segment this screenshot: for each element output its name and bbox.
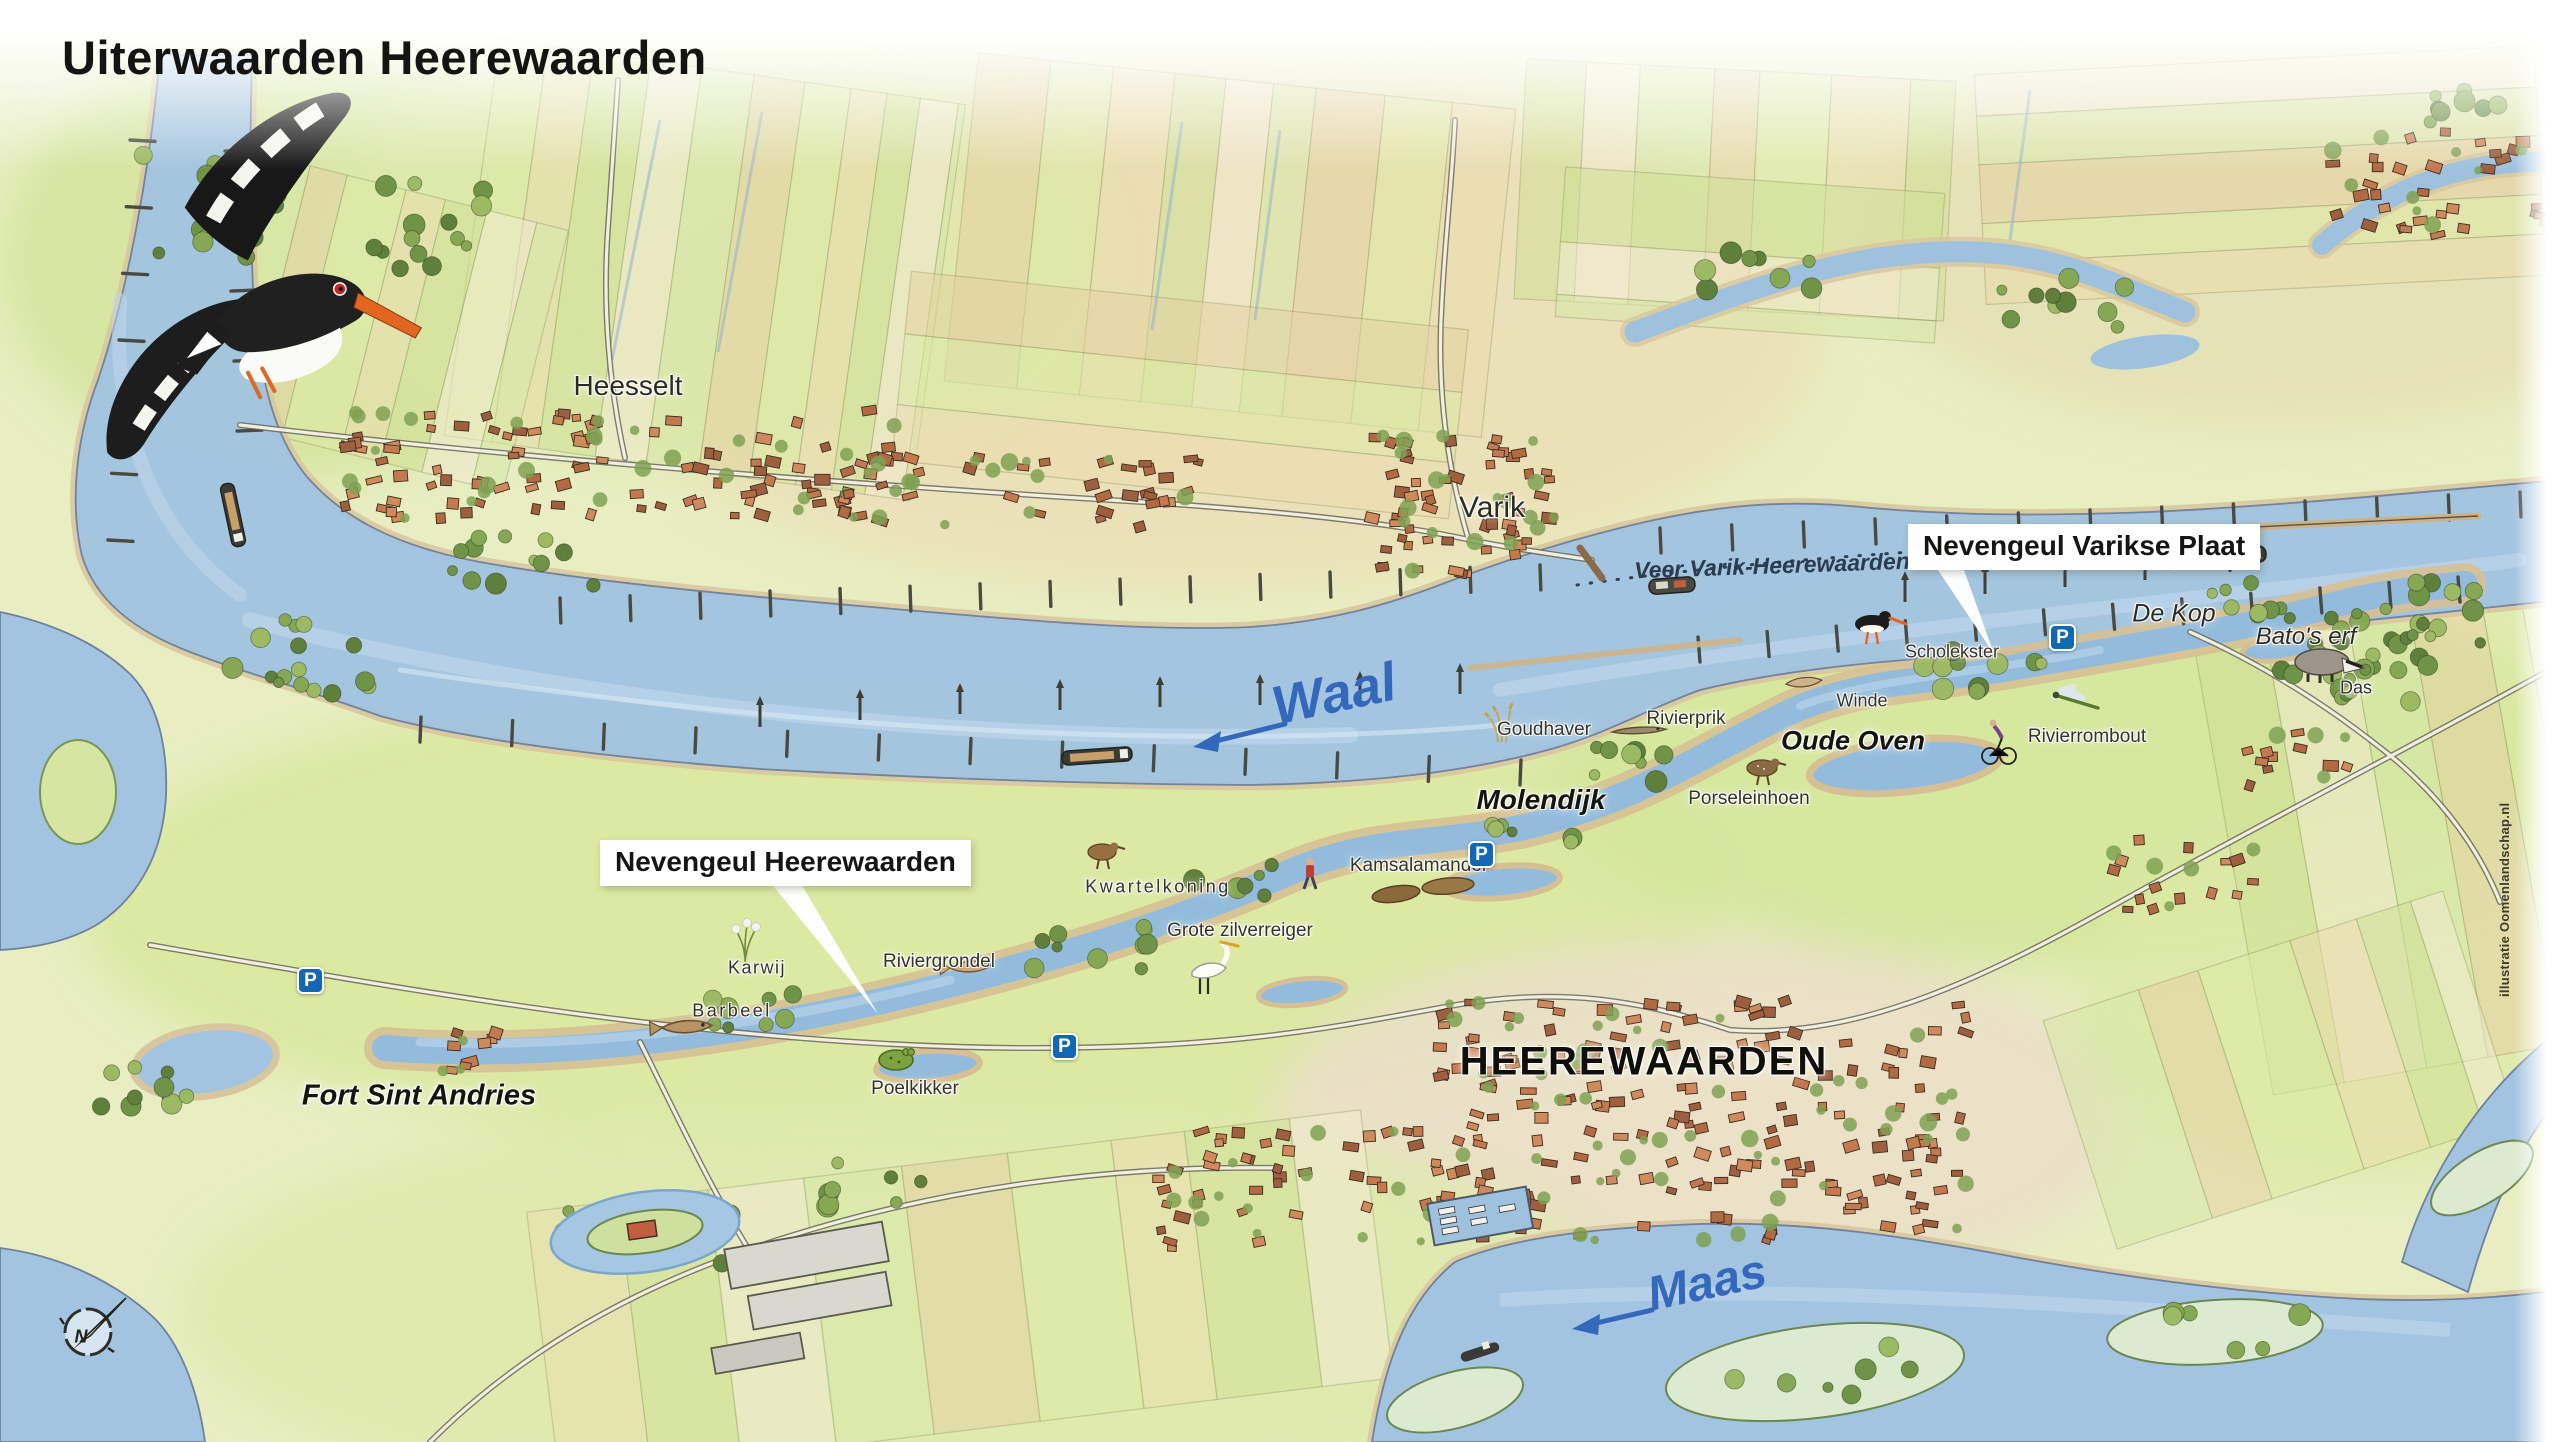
label-fort-sint-andries: Fort Sint Andries [302,1080,536,1113]
label-varik: Varik [1459,491,1525,525]
parking-letter: P [1058,1036,1071,1058]
label-riviergrondel: Riviergrondel [883,951,995,973]
parking-icon: P [1468,841,1495,868]
parking-icon: P [2049,624,2076,651]
label-winde: Winde [1836,691,1887,712]
label-oude-oven: Oude Oven [1781,726,1925,757]
compass-north-letter: N [75,1327,88,1348]
label-batos-erf: Bato's erf [2256,623,2357,651]
label-de-kop: De Kop [2132,600,2215,629]
illustrated-map-uiterwaarden-heerewaarden: Uiterwaarden Heerewaarden Heesselt Varik… [0,0,2560,1442]
label-rivierprik: Rivierprik [1646,708,1725,730]
label-molendijk: Molendijk [1476,784,1605,816]
label-kwartelkoning: Kwartelkoning [1085,877,1231,898]
label-heesselt: Heesselt [574,370,683,402]
label-scholekster: Scholekster [1905,642,1999,663]
page-title: Uiterwaarden Heerewaarden [62,30,707,85]
callout-nevengeul-heerewaarden: Nevengeul Heerewaarden [600,840,971,886]
label-das: Das [2340,678,2372,699]
label-barbeel: Barbeel [692,1001,772,1022]
parking-letter: P [1475,844,1488,866]
illustrator-credit: illustratie Oomenlandschap.nl [2497,803,2512,997]
callout-nevengeul-varikse-plaat: Nevengeul Varikse Plaat [1908,524,2260,570]
parking-letter: P [2056,627,2069,649]
label-rivierrombout: Rivierrombout [2028,726,2146,748]
label-karwij: Karwij [728,958,786,979]
label-grote-zilverreiger: Grote zilverreiger [1167,920,1313,942]
parking-icon: P [1051,1033,1078,1060]
parking-icon: P [297,967,324,994]
label-goudhaver: Goudhaver [1497,719,1591,741]
label-poelkikker: Poelkikker [871,1078,959,1100]
label-porseleinhoen: Porseleinhoen [1688,788,1809,810]
parking-letter: P [304,970,317,992]
label-heerewaarden: HEEREWAARDEN [1460,1040,1828,1085]
